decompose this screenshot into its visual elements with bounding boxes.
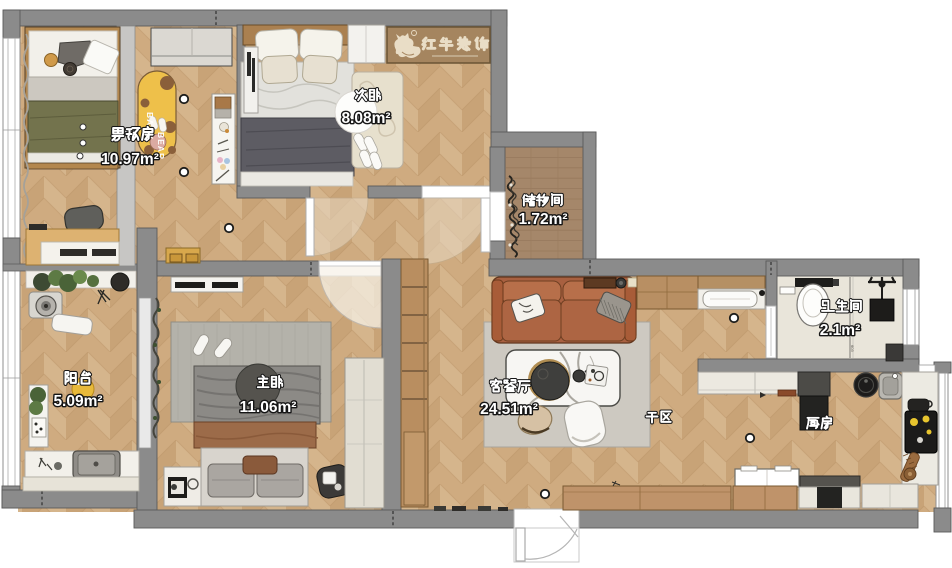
svg-text:2.1m²: 2.1m² [820, 322, 861, 339]
svg-text:1.72m²: 1.72m² [518, 211, 567, 228]
svg-text:10.97m²: 10.97m² [101, 151, 159, 168]
svg-text:24.51m²: 24.51m² [480, 401, 538, 418]
svg-text:603: 603 [850, 345, 855, 352]
svg-text:5.09m²: 5.09m² [53, 393, 102, 410]
svg-text:8.08m²: 8.08m² [341, 110, 390, 127]
svg-text:11.06m²: 11.06m² [240, 399, 297, 416]
